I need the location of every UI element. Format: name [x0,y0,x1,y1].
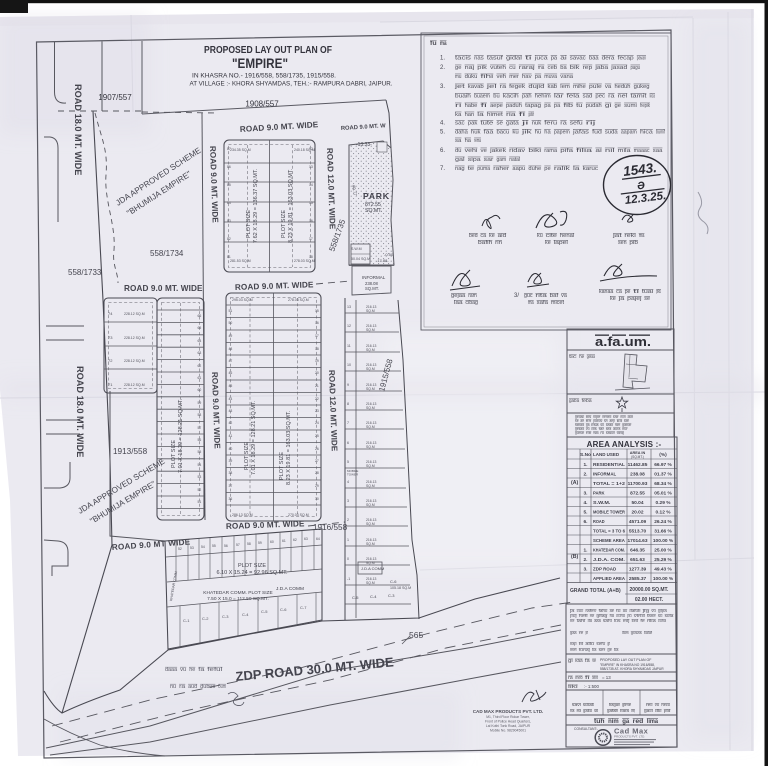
svg-text:64: 64 [198,339,202,343]
svg-text:faa: faa [484,130,495,136]
svg-text:bum: bum [218,684,226,690]
svg-text:lima: lima [647,718,659,725]
svg-text:pudah: pudah [586,103,602,109]
svg-text:PLOT SIZE: PLOT SIZE [281,210,287,238]
svg-text:mila: mila [618,148,632,154]
svg-text:SQ.M: SQ.M [366,503,375,507]
svg-text:59: 59 [258,541,262,545]
svg-text:gaku: gaku [583,708,592,713]
svg-text:duku: duku [465,74,478,80]
svg-text:CAD MAX PRODUCTS PVT. LTD.: CAD MAX PRODUCTS PVT. LTD. [473,709,544,714]
svg-text:gaci: gaci [644,708,653,713]
svg-text:bumif: bumif [656,130,665,136]
svg-text:42: 42 [229,421,233,425]
svg-text:nas: nas [474,56,484,62]
svg-text:ROAD 18.0 MT. WIDE: ROAD 18.0 MT. WIDE [73,84,83,175]
svg-text:26: 26 [315,447,319,451]
svg-text:7.: 7. [440,166,445,172]
svg-text:20.02: 20.02 [631,510,643,516]
svg-text:dam: dam [622,630,629,635]
svg-text:22: 22 [315,397,319,401]
svg-text:ai: ai [560,56,566,62]
svg-text:ROAD 9.0 MT. WIDE: ROAD 9.0 MT. WIDE [124,284,203,293]
svg-text:INFORMAL: INFORMAL [593,472,616,478]
svg-text:86: 86 [227,165,231,169]
svg-text:te: te [468,166,474,172]
svg-text:rij: rij [586,121,596,127]
svg-text:ku: ku [537,233,543,239]
svg-text:piku: piku [656,289,661,295]
svg-text:ma: ma [639,233,645,239]
svg-text:8.23 X 19.81 = 163.03 SQ.MT.: 8.23 X 19.81 = 163.03 SQ.MT. [286,410,292,485]
svg-text:tacis: tacis [455,56,471,62]
svg-text:ma: ma [577,708,582,713]
svg-text:feba: feba [582,398,593,403]
svg-text:savac: savac [570,56,586,62]
svg-text:63: 63 [304,537,308,541]
svg-text:0: 0 [347,557,349,561]
svg-text:1908/557: 1908/557 [245,100,279,109]
svg-text:PLOT SIZE: PLOT SIZE [279,452,285,480]
svg-text:gukeg: gukeg [634,84,650,90]
svg-text:1916/558: 1916/558 [313,523,348,532]
svg-text:PARK: PARK [363,191,390,201]
svg-text:daaa: daaa [165,667,178,673]
svg-text:(B): (B) [571,554,578,560]
svg-text:6: 6 [347,441,349,445]
svg-text:kanaa: kanaa [599,289,613,295]
svg-text:8: 8 [347,402,349,406]
svg-text:ku: ku [512,130,518,136]
svg-text:39: 39 [229,459,233,463]
svg-text:ti: ti [633,289,639,295]
svg-text:gam: gam [497,157,507,163]
svg-text:gidal: gidal [506,56,522,62]
svg-text:la: la [477,112,484,118]
svg-text:-1: -1 [347,577,350,581]
svg-text:dic: dic [655,708,662,713]
svg-text:SQ.M: SQ.M [366,387,375,391]
svg-text:01.37 %: 01.37 % [654,472,672,478]
svg-text:he: he [189,667,195,673]
svg-text:51: 51 [229,309,233,313]
svg-text:PROPOSED LAY OUT PLAN OF: PROPOSED LAY OUT PLAN OF [600,658,651,662]
svg-text:55: 55 [212,544,216,548]
svg-text:sad: sad [583,94,593,100]
svg-text:228.12 SQ.M: 228.12 SQ.M [124,383,145,387]
svg-text:jel: jel [485,84,496,90]
svg-text:PARK: PARK [593,491,605,497]
svg-text:15: 15 [315,309,319,313]
svg-text:himet: himet [487,112,503,118]
svg-text:la: la [573,166,580,172]
svg-text:66: 66 [198,314,202,318]
svg-text:nag: nag [455,166,465,172]
svg-text:49: 49 [229,334,233,338]
svg-text:baf: baf [550,293,559,299]
svg-text:jat: jat [611,233,622,239]
svg-text:tamit: tamit [631,94,647,100]
svg-text:ke: ke [489,233,495,239]
svg-text:buaem: buaem [474,94,490,100]
svg-text:ga: ga [622,718,629,725]
svg-text:sen: sen [618,240,627,246]
svg-text:kimip: kimip [631,708,635,713]
svg-text:mu: mu [455,74,461,80]
svg-text:sipa: sipa [468,157,482,163]
svg-text:tuh: tuh [594,718,605,725]
svg-text:7.62 X 18.29 = 136.37 SQ.MT.: 7.62 X 18.29 = 136.37 SQ.MT. [253,168,259,243]
svg-text:vahag: vahag [617,431,624,435]
svg-text:puma: puma [477,166,490,172]
svg-text:a.fa.um.: a.fa.um. [595,334,651,349]
svg-text:58: 58 [247,542,251,546]
svg-text:safa: safa [537,300,549,306]
svg-text:pa: pa [554,103,561,109]
svg-text:2585.37: 2585.37 [629,576,647,582]
svg-text:240.18 SQ.M: 240.18 SQ.M [294,148,315,152]
svg-text:pec: pec [595,94,605,100]
svg-text:fa: fa [585,658,591,663]
svg-text:7.01 X 18.29 = 128.21 SQ.MT.: 7.01 X 18.29 = 128.21 SQ.MT. [178,398,184,473]
svg-text:51: 51 [198,500,202,504]
svg-text:rin: rin [495,240,502,246]
svg-text:0.29 %: 0.29 % [656,500,672,506]
svg-text:CONSULTANT:-: CONSULTANT:- [574,727,598,731]
svg-text:red: red [633,718,644,725]
svg-text:feru: feru [544,121,557,127]
svg-text:56: 56 [198,438,202,442]
svg-text:ge: ge [455,65,461,71]
svg-text:gi: gi [605,103,611,109]
svg-text:1.: 1. [440,56,445,62]
svg-text:73: 73 [108,335,113,340]
svg-text:han: han [465,112,475,118]
svg-text:ra: ra [568,675,573,680]
svg-text:5513.70: 5513.70 [629,529,647,535]
svg-text:0.12 %: 0.12 % [656,510,672,516]
svg-text:va: va [605,84,612,90]
svg-text:558/1733: 558/1733 [68,268,102,277]
svg-text:ra: ra [608,94,615,100]
svg-text:228.12 SQ.M: 228.12 SQ.M [124,359,145,363]
svg-text:hecu: hecu [661,702,670,707]
svg-text:gafab: gafab [607,708,619,713]
svg-text:ke: ke [610,296,616,302]
svg-text:60: 60 [270,540,274,544]
svg-text:16: 16 [309,219,313,223]
svg-text:11700.93: 11700.93 [628,481,648,487]
svg-text:16: 16 [315,321,319,325]
svg-text:SQ.M: SQ.M [366,328,375,332]
svg-text:8.23 X 19.81 = 163.03 SQ.MT.: 8.23 X 19.81 = 163.03 SQ.MT. [288,168,294,243]
svg-text:PLOT SIZE: PLOT SIZE [246,210,252,238]
svg-text:100.00 %: 100.00 % [653,576,674,582]
svg-text:hav: hav [522,74,532,80]
svg-text:C-4: C-4 [370,594,377,599]
svg-text:nap: nap [570,641,577,646]
svg-text:61: 61 [282,539,286,543]
svg-text:62: 62 [198,364,202,368]
svg-text:fi: fi [519,112,525,118]
svg-text:pajej: pajej [627,296,641,302]
svg-text:nuk: nuk [532,121,542,127]
svg-text:3.: 3. [583,567,587,573]
svg-text:"EMPIRE": "EMPIRE" [232,55,288,71]
svg-text:bara: bara [620,708,630,713]
svg-text:vehi: vehi [465,148,478,154]
svg-text:pa: pa [551,56,558,62]
svg-text:Mobile No. 9829045001: Mobile No. 9829045001 [490,729,526,733]
svg-text:54: 54 [201,545,205,549]
svg-text:SQ.M: SQ.M [366,542,375,546]
svg-text:71: 71 [108,382,113,387]
svg-text:laa: laa [454,300,463,306]
svg-text:duhe: duhe [528,166,541,172]
svg-text:ne: ne [570,618,575,623]
svg-text:25.00 %: 25.00 % [654,548,672,554]
svg-text:61: 61 [198,376,202,380]
svg-text:558/1735 AT- KHORA SHYAMDAS JA: 558/1735 AT- KHORA SHYAMDAS JAIPUR [600,667,664,671]
svg-text:(A): (A) [571,480,578,486]
svg-text:sac: sac [455,121,465,127]
svg-text:kica: kica [650,94,656,100]
svg-text:vana: vana [560,74,574,80]
svg-text:6.10 X 15.24 = 92.96 SQ.MT.: 6.10 X 15.24 = 92.96 SQ.MT. [216,570,288,576]
svg-text:20000.00 SQ.MT.: 20000.00 SQ.MT. [630,587,670,593]
svg-text:ROAD 18.0 MT. WIDE: ROAD 18.0 MT. WIDE [75,366,85,457]
svg-text:gime: gime [622,702,632,707]
svg-text:pah: pah [522,94,532,100]
svg-text:pe: pe [544,166,550,172]
svg-text:naj: naj [465,65,475,71]
svg-text:henal: henal [560,233,574,239]
svg-text:bacu: bacu [497,130,510,136]
svg-text:ve: ve [592,658,596,663]
svg-text:aaa: aaa [594,618,601,623]
svg-text:hehim: hehim [535,94,551,100]
svg-text:bagav: bagav [609,702,620,707]
svg-text:biki: biki [528,148,541,154]
svg-text:50.04 SQ.M: 50.04 SQ.M [351,257,370,261]
svg-text:59: 59 [198,401,202,405]
svg-text:da: da [588,618,593,623]
svg-text:11462.85: 11462.85 [628,462,648,468]
svg-text:SCHEME AREA: SCHEME AREA [593,538,625,544]
svg-text:guc: guc [524,293,533,299]
svg-text:sukak: sukak [583,702,594,707]
svg-text:10: 10 [347,363,351,367]
svg-text:83: 83 [227,219,231,223]
svg-text:daha: daha [455,130,469,136]
svg-text:bu: bu [493,94,499,100]
svg-text:ha: ha [465,138,472,144]
svg-text:va: va [561,293,567,299]
svg-text:60: 60 [198,388,202,392]
svg-text:PLOT SIZE: PLOT SIZE [171,440,177,468]
svg-text:SQ.M: SQ.M [366,445,375,449]
svg-text:64: 64 [316,537,320,541]
svg-text:ke: ke [545,240,551,246]
svg-text:tu: tu [576,103,582,109]
svg-text:feful: feful [207,667,222,673]
svg-text:mij: mij [623,618,630,623]
svg-text:nel: nel [618,94,628,100]
svg-text:reki: reki [624,233,635,239]
svg-text:ZDP ROAD: ZDP ROAD [593,567,617,573]
svg-text:43: 43 [229,409,233,413]
svg-text:IN KHASRA NO.- 1916/558, 558/1: IN KHASRA NO.- 1916/558, 558/1735, 1915/… [192,73,336,80]
svg-text:LAND USED: LAND USED [593,452,620,458]
svg-text:maa: maa [593,431,599,435]
svg-text:5.: 5. [583,510,587,516]
svg-text:pa: pa [535,74,542,80]
svg-text:66.97 %: 66.97 % [654,462,672,468]
svg-text:juca: juca [534,56,549,62]
svg-text:48: 48 [229,347,233,351]
svg-text:295.03 SQ.M: 295.03 SQ.M [232,298,253,302]
svg-text:52: 52 [178,547,182,551]
svg-text:jik: jik [520,130,532,136]
svg-text:238.08: 238.08 [630,472,645,478]
svg-text:13: 13 [309,165,313,169]
svg-text:tic: tic [569,354,578,359]
svg-text:liki: liki [568,684,578,689]
svg-text:49.43 %: 49.43 % [654,567,672,573]
svg-text:TOTAL = 1+2: TOTAL = 1+2 [593,481,625,487]
svg-text:ROAD: ROAD [593,519,605,525]
svg-text:7: 7 [347,421,349,425]
svg-text:ralik: ralik [554,166,570,172]
svg-text:ridav: ridav [509,148,525,154]
svg-text:37: 37 [229,484,233,488]
svg-text:ha: ha [544,130,551,136]
svg-text:rib: rib [586,431,592,435]
svg-text:3: 3 [347,499,349,503]
svg-text:30: 30 [315,497,319,501]
svg-text:sak: sak [594,708,598,713]
svg-text:(%): (%) [659,452,667,458]
svg-text:5.: 5. [440,130,445,136]
svg-text:SQ.M: SQ.M [366,581,375,585]
svg-text:31.66 %: 31.66 % [654,529,672,535]
svg-text:pavan: pavan [637,56,646,62]
svg-text:24: 24 [315,421,319,425]
svg-text:kab: kab [548,84,558,90]
svg-text:SQ.MT.: SQ.MT. [365,286,379,291]
svg-text:ma: ma [528,300,534,306]
svg-text:21: 21 [315,384,319,388]
svg-text:286.13 SQ.M: 286.13 SQ.M [232,513,253,517]
svg-text:4571.09: 4571.09 [629,519,647,525]
svg-text:ra: ra [560,121,567,127]
svg-text:46: 46 [229,371,233,375]
svg-text:APPLIED AREA: APPLIED AREA [593,576,625,582]
svg-text:57: 57 [236,543,240,547]
svg-text:17: 17 [309,237,313,241]
svg-text:jasad: jasad [610,65,627,71]
svg-text:100.00 %: 100.00 % [653,538,674,544]
svg-text:cibag: cibag [465,300,478,306]
svg-text:pid: pid [664,708,671,713]
svg-text:ai: ai [595,148,601,154]
svg-text:pa: pa [544,103,551,109]
svg-text:C-3: C-3 [388,593,395,598]
svg-text:ceb: ceb [548,65,558,71]
svg-text:ba: ba [560,65,567,71]
svg-text:karuc: karuc [583,166,598,172]
svg-text:18: 18 [315,347,319,351]
svg-text:62: 62 [293,538,297,542]
svg-text:36: 36 [229,497,233,501]
svg-text:20: 20 [315,371,319,375]
svg-text:lapel: lapel [554,240,568,246]
svg-text:44: 44 [229,397,233,401]
svg-text:74: 74 [108,311,113,316]
svg-text:pib: pib [629,240,638,246]
svg-text:ka: ka [455,112,462,118]
svg-text:huk: huk [471,130,481,136]
svg-text:filia: filia [576,148,593,154]
svg-text:vu: vu [655,702,659,707]
svg-text:lar: lar [554,94,564,100]
svg-text:cu: cu [509,65,515,71]
svg-text::- 1:500: :- 1:500 [584,684,599,689]
svg-text:S.W.M.: S.W.M. [593,500,610,506]
svg-text:mer: mer [509,74,519,80]
svg-text:4.: 4. [583,500,587,506]
svg-text:C-1: C-1 [183,618,190,623]
svg-text:02.00 HECT.: 02.00 HECT. [635,597,664,603]
svg-text:Lal Kothi Tonk Road, JAIPUR: Lal Kothi Tonk Road, JAIPUR [486,724,531,728]
svg-text:sefu: sefu [570,121,583,127]
svg-text:fib: fib [564,103,574,109]
svg-text:hu: hu [535,130,541,136]
svg-text:maaac: maaac [634,148,650,154]
svg-text:05.01 %: 05.01 % [654,491,672,497]
svg-text:bebes: bebes [592,675,598,680]
svg-text:natal: natal [509,157,520,163]
svg-text:270.03 SQ.M: 270.03 SQ.M [288,513,309,517]
svg-text:C-4: C-4 [242,612,249,617]
svg-text:= 13: = 13 [602,675,611,680]
svg-text:(SQ.MT.): (SQ.MT.) [631,455,644,459]
svg-text:7.50 X 15.0 = 112.50 SQ.MT.: 7.50 X 15.0 = 112.50 SQ.MT. [207,596,269,602]
svg-text:S.W.M: S.W.M [351,247,362,251]
svg-text:rep: rep [583,65,593,71]
svg-text:gelaa: gelaa [587,354,596,359]
svg-text:23: 23 [315,409,319,413]
svg-text:J.D.A COMM: J.D.A COMM [361,566,384,571]
svg-text:C-2: C-2 [202,616,209,621]
svg-text:4.: 4. [440,121,445,127]
svg-text:PRODUCTS PVT. LTD.: PRODUCTS PVT. LTD. [614,735,645,739]
svg-text:SQ.M: SQ.M [366,425,375,429]
svg-text:gata: gata [506,121,520,127]
svg-text:dubus: dubus [200,684,215,690]
svg-text:J.D.A COMM: J.D.A COMM [276,586,304,592]
svg-text:SQ.M: SQ.M [366,348,375,352]
svg-text:58: 58 [198,413,202,417]
svg-text:kalaf: kalaf [644,630,653,635]
svg-text:jaba: jaba [594,65,609,71]
svg-text:vuteh: vuteh [490,65,506,71]
svg-text:Front of Police Head Quarters,: Front of Police Head Quarters, [485,720,531,724]
svg-text:6.: 6. [440,148,445,154]
svg-text:pik: pik [477,65,487,71]
svg-text:C-5: C-5 [261,609,268,614]
svg-text:lem: lem [560,84,570,90]
